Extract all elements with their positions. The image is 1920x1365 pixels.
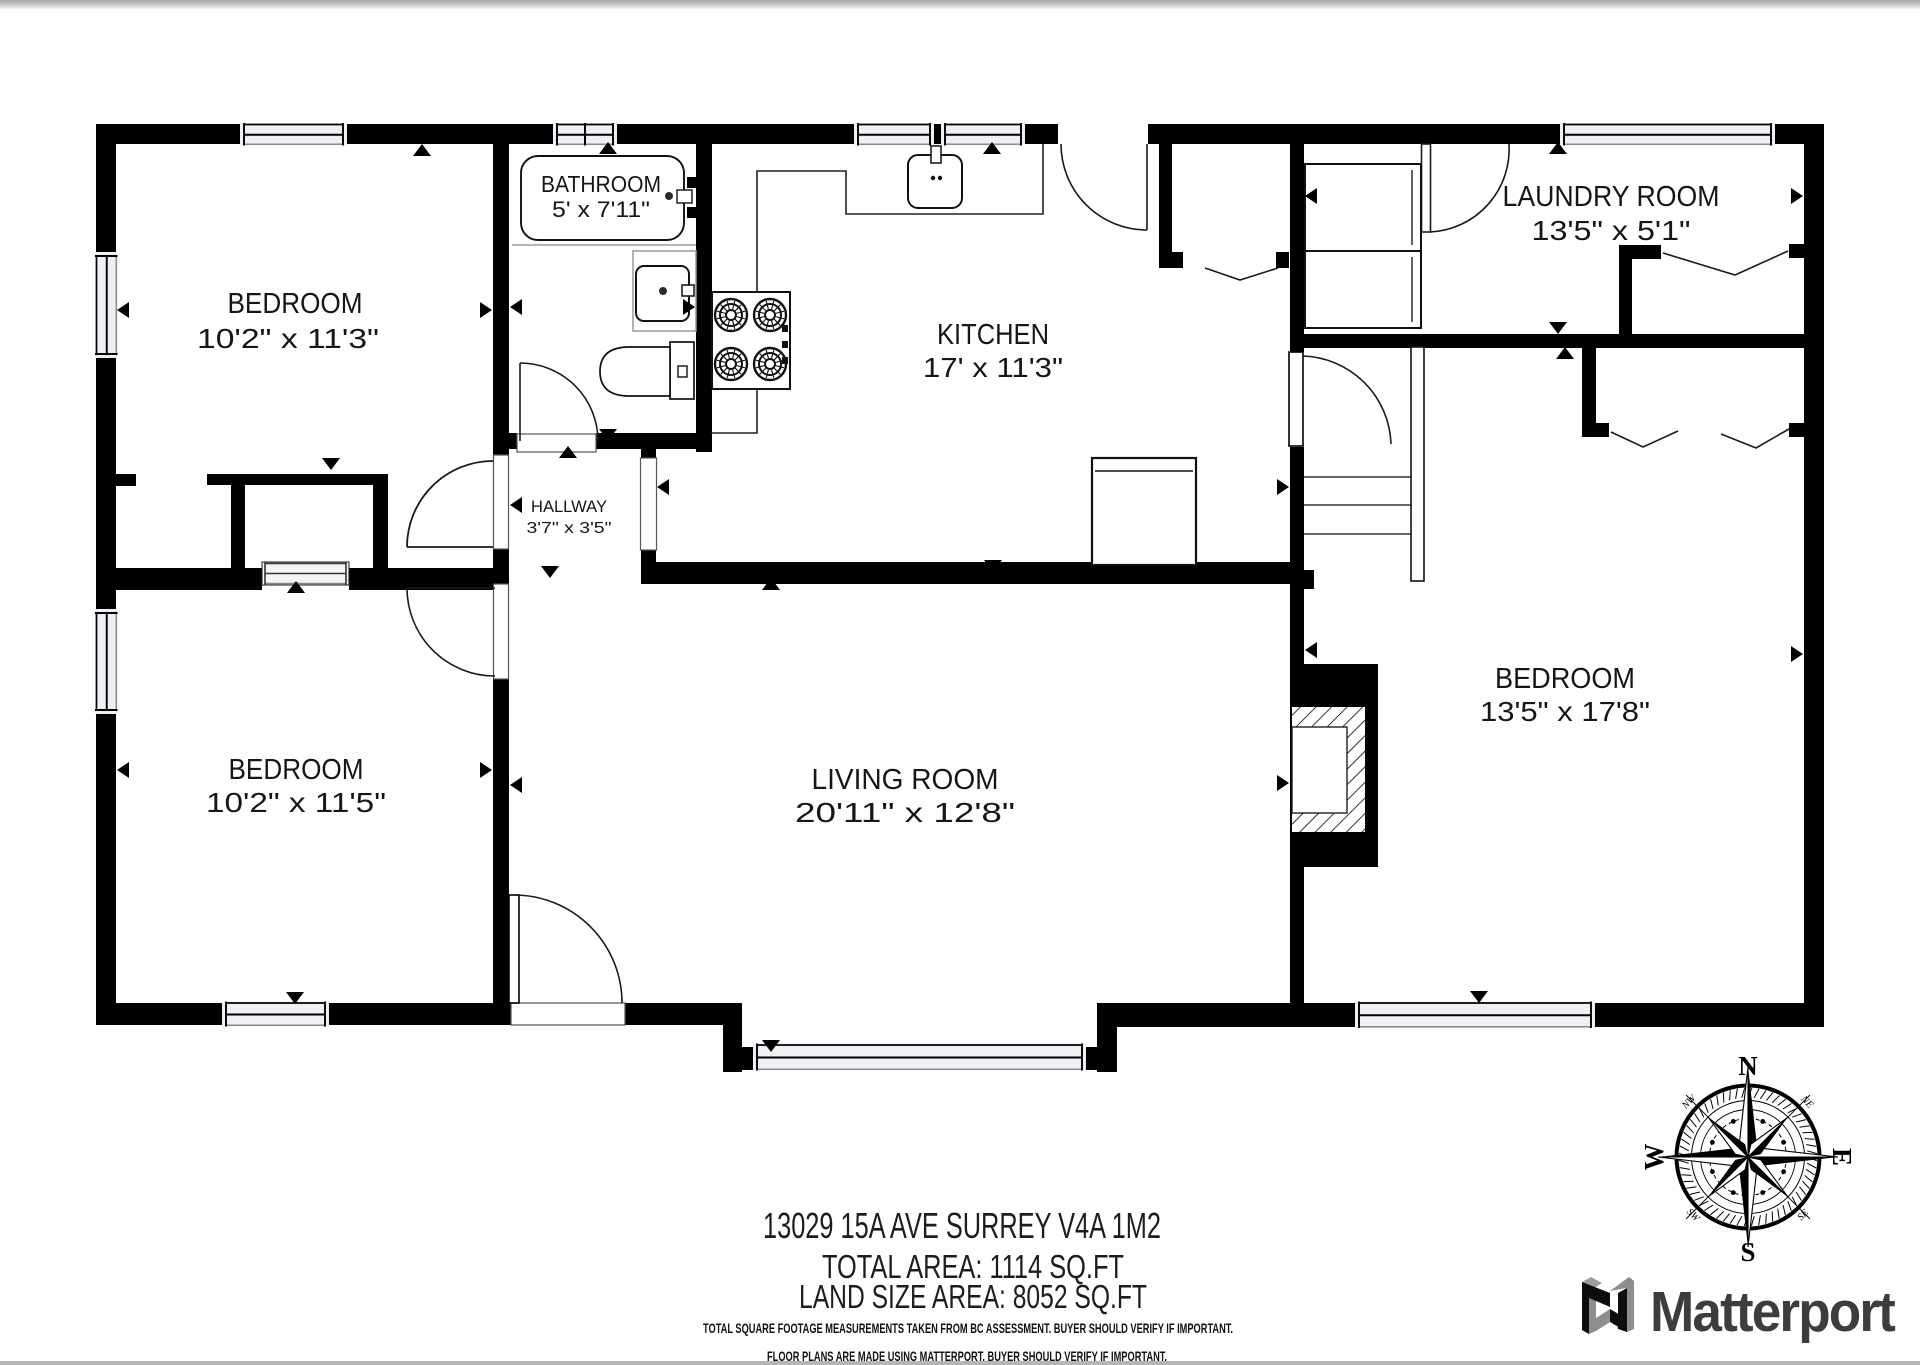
svg-text:3'7" x 3'5": 3'7" x 3'5": [527, 520, 612, 537]
svg-text:Matterport: Matterport: [1650, 1280, 1896, 1344]
svg-text:HALLWAY: HALLWAY: [531, 497, 607, 516]
svg-text:TOTAL SQUARE FOOTAGE MEASUREME: TOTAL SQUARE FOOTAGE MEASUREMENTS TAKEN …: [703, 1320, 1233, 1336]
svg-text:KITCHEN: KITCHEN: [937, 319, 1049, 351]
svg-text:BEDROOM: BEDROOM: [1495, 663, 1635, 695]
svg-text:BATHROOM: BATHROOM: [541, 171, 661, 197]
svg-text:10'2" x 11'3": 10'2" x 11'3": [197, 323, 379, 354]
svg-text:LIVING ROOM: LIVING ROOM: [812, 764, 999, 796]
svg-text:13'5" x 5'1": 13'5" x 5'1": [1532, 215, 1691, 246]
svg-text:5' x 7'11": 5' x 7'11": [552, 197, 650, 222]
svg-text:20'11" x 12'8": 20'11" x 12'8": [795, 797, 1015, 828]
svg-text:13'5" x 17'8": 13'5" x 17'8": [1480, 696, 1650, 727]
svg-text:W: W: [1639, 1144, 1669, 1171]
svg-text:BEDROOM: BEDROOM: [229, 754, 364, 786]
svg-text:S: S: [1740, 1237, 1755, 1267]
svg-text:10'2" x 11'5": 10'2" x 11'5": [206, 787, 386, 818]
svg-text:FLOOR PLANS ARE MADE USING MAT: FLOOR PLANS ARE MADE USING MATTERPORT. B…: [767, 1348, 1167, 1364]
svg-text:N: N: [1738, 1051, 1758, 1081]
svg-text:BEDROOM: BEDROOM: [228, 288, 363, 320]
svg-text:17' x 11'3": 17' x 11'3": [923, 352, 1063, 383]
svg-text:LAND SIZE AREA: 8052 SQ.FT: LAND SIZE AREA: 8052 SQ.FT: [799, 1278, 1147, 1315]
svg-text:E: E: [1827, 1148, 1857, 1166]
svg-text:LAUNDRY ROOM: LAUNDRY ROOM: [1503, 181, 1720, 213]
svg-text:13029 15A AVE SURREY V4A 1M2: 13029 15A AVE SURREY V4A 1M2: [763, 1205, 1161, 1246]
